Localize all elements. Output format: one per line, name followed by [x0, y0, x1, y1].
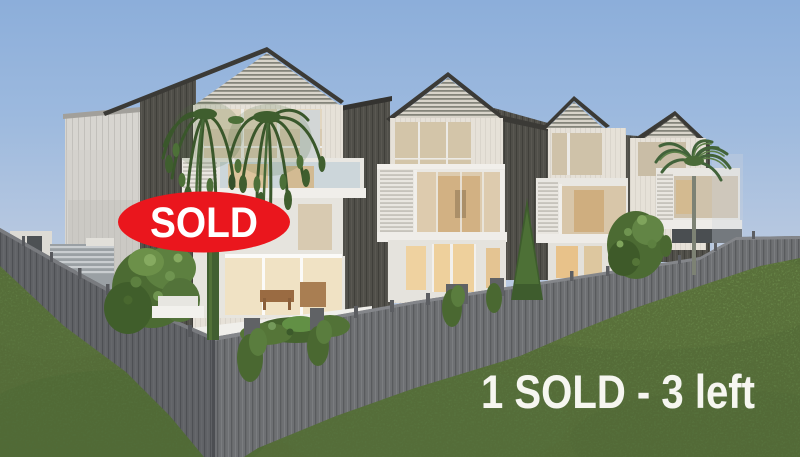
svg-text:SOLD: SOLD [150, 199, 258, 247]
svg-text:1 SOLD - 3 left: 1 SOLD - 3 left [481, 365, 755, 418]
